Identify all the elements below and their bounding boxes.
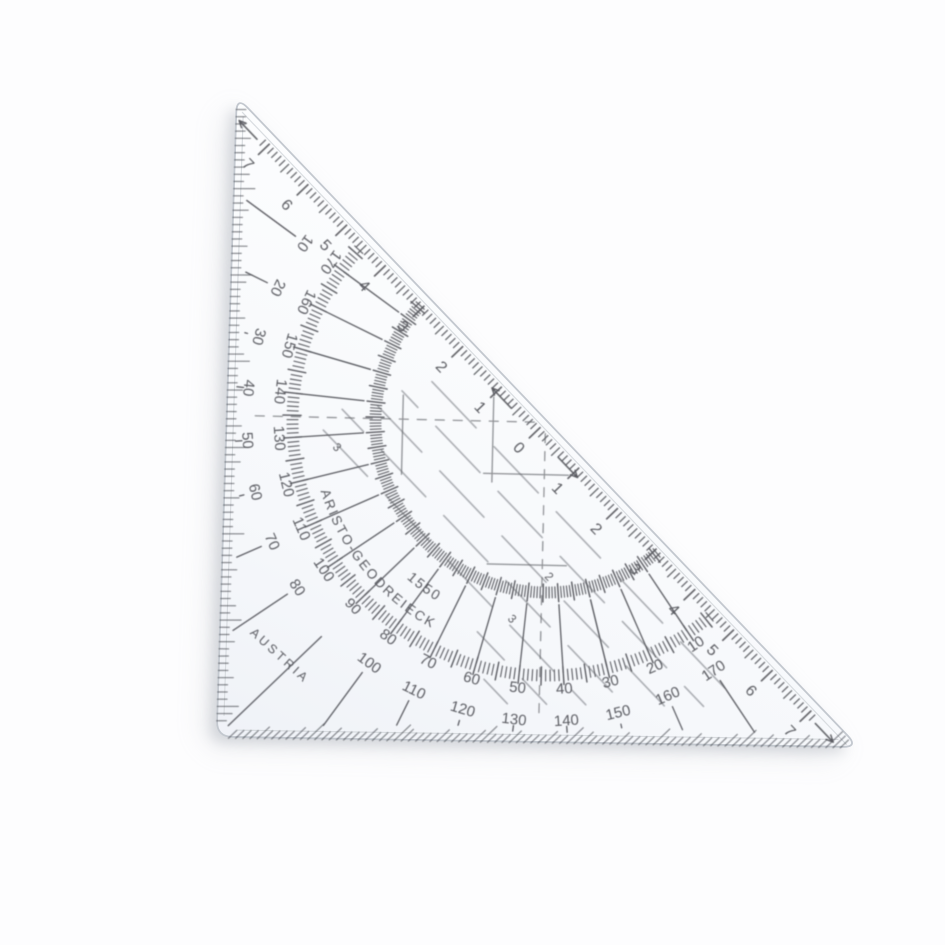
degree-label-inner: 130	[270, 425, 289, 451]
degree-label-outer: 50	[238, 432, 256, 450]
degree-label-outer: 130	[501, 710, 528, 730]
degree-label-inner: 40	[555, 680, 573, 698]
degree-label-inner: 140	[270, 378, 290, 405]
geodreieck-photo: 7654321012345671017020160301504014050130…	[0, 0, 945, 945]
degree-label-outer: 140	[553, 712, 579, 731]
degree-label-outer: 40	[239, 379, 258, 397]
photo-canvas: 7654321012345671017020160301504014050130…	[0, 0, 945, 945]
